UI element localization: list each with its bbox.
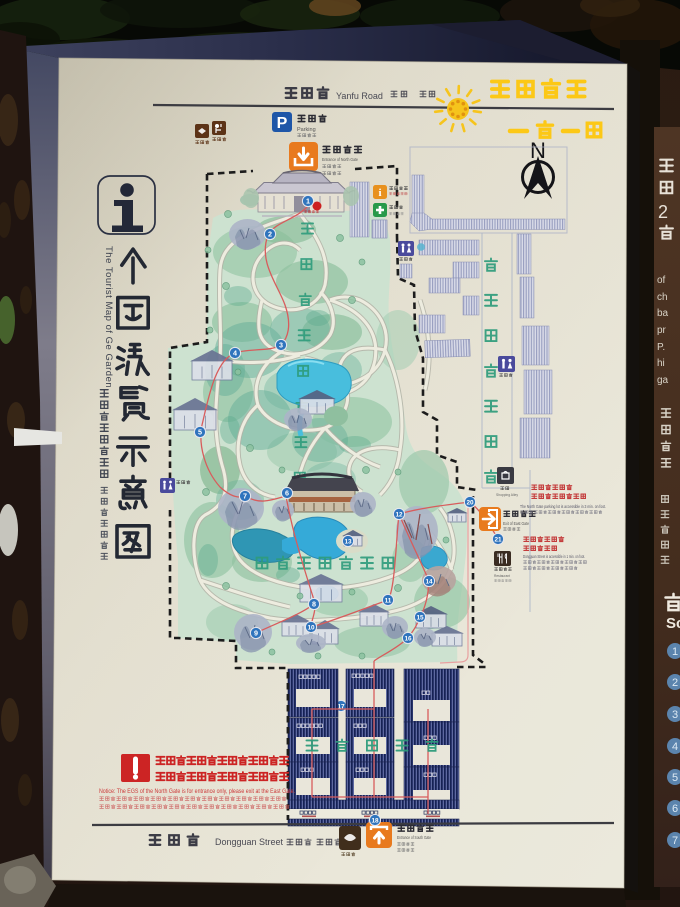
svg-text:1: 1 xyxy=(306,196,310,205)
svg-text:16: 16 xyxy=(404,635,412,642)
svg-text:5: 5 xyxy=(198,427,202,436)
svg-text:ba: ba xyxy=(657,308,669,319)
svg-text:12: 12 xyxy=(395,511,403,518)
svg-text:Dongguan Street: Dongguan Street xyxy=(215,837,284,847)
svg-text:14: 14 xyxy=(425,578,433,585)
svg-text:1: 1 xyxy=(672,646,678,658)
svg-text:P.: P. xyxy=(657,342,665,353)
svg-text:ga: ga xyxy=(657,375,669,386)
svg-text:Notice: The EGS of the North: Notice: The EGS of the North Gate is for… xyxy=(99,788,295,795)
svg-text:2: 2 xyxy=(672,677,678,689)
svg-text:2: 2 xyxy=(268,229,272,238)
svg-text:Dongguan Street is accessible: Dongguan Street is accessible in 1 min. … xyxy=(523,554,585,559)
svg-text:pr: pr xyxy=(657,325,667,336)
svg-text:7: 7 xyxy=(243,491,247,500)
svg-text:3: 3 xyxy=(279,340,283,349)
svg-text:13: 13 xyxy=(344,538,352,545)
svg-text:Exit of East Gate: Exit of East Gate xyxy=(503,521,530,526)
svg-text:21: 21 xyxy=(494,536,502,543)
svg-text:7: 7 xyxy=(672,835,678,847)
svg-text:P: P xyxy=(277,115,288,132)
svg-text:Restaurant: Restaurant xyxy=(494,574,510,578)
svg-text:5: 5 xyxy=(672,772,678,784)
svg-text:9: 9 xyxy=(254,628,258,637)
svg-text:of: of xyxy=(657,275,666,286)
svg-text:6: 6 xyxy=(672,803,678,815)
svg-text:Entrance of South Gate: Entrance of South Gate xyxy=(397,835,431,840)
svg-text:3: 3 xyxy=(672,709,678,721)
svg-text:6: 6 xyxy=(285,488,289,497)
svg-text:8: 8 xyxy=(312,599,316,608)
svg-text:ch: ch xyxy=(657,292,668,303)
svg-text:The Tourist Map of Ge Garden: The Tourist Map of Ge Garden xyxy=(103,246,114,388)
svg-text:10: 10 xyxy=(307,624,315,631)
svg-text:hi: hi xyxy=(657,358,665,369)
svg-text:18: 18 xyxy=(371,817,379,824)
svg-text:15: 15 xyxy=(416,614,424,621)
svg-text:Shopping Alley: Shopping Alley xyxy=(496,493,518,497)
svg-text:Yanfu Road: Yanfu Road xyxy=(336,91,383,101)
svg-text:11: 11 xyxy=(385,597,392,604)
svg-text:The North Gate parking lot is: The North Gate parking lot is accessible… xyxy=(520,504,606,509)
svg-text:4: 4 xyxy=(672,741,678,753)
svg-text:20: 20 xyxy=(466,499,474,506)
svg-text:i: i xyxy=(378,187,381,199)
svg-text:Sc: Sc xyxy=(666,615,680,632)
svg-text:Entrance of North Gate: Entrance of North Gate xyxy=(322,157,358,163)
svg-text:Parking: Parking xyxy=(297,127,316,133)
svg-text:2: 2 xyxy=(658,202,668,222)
svg-text:4: 4 xyxy=(233,348,237,357)
